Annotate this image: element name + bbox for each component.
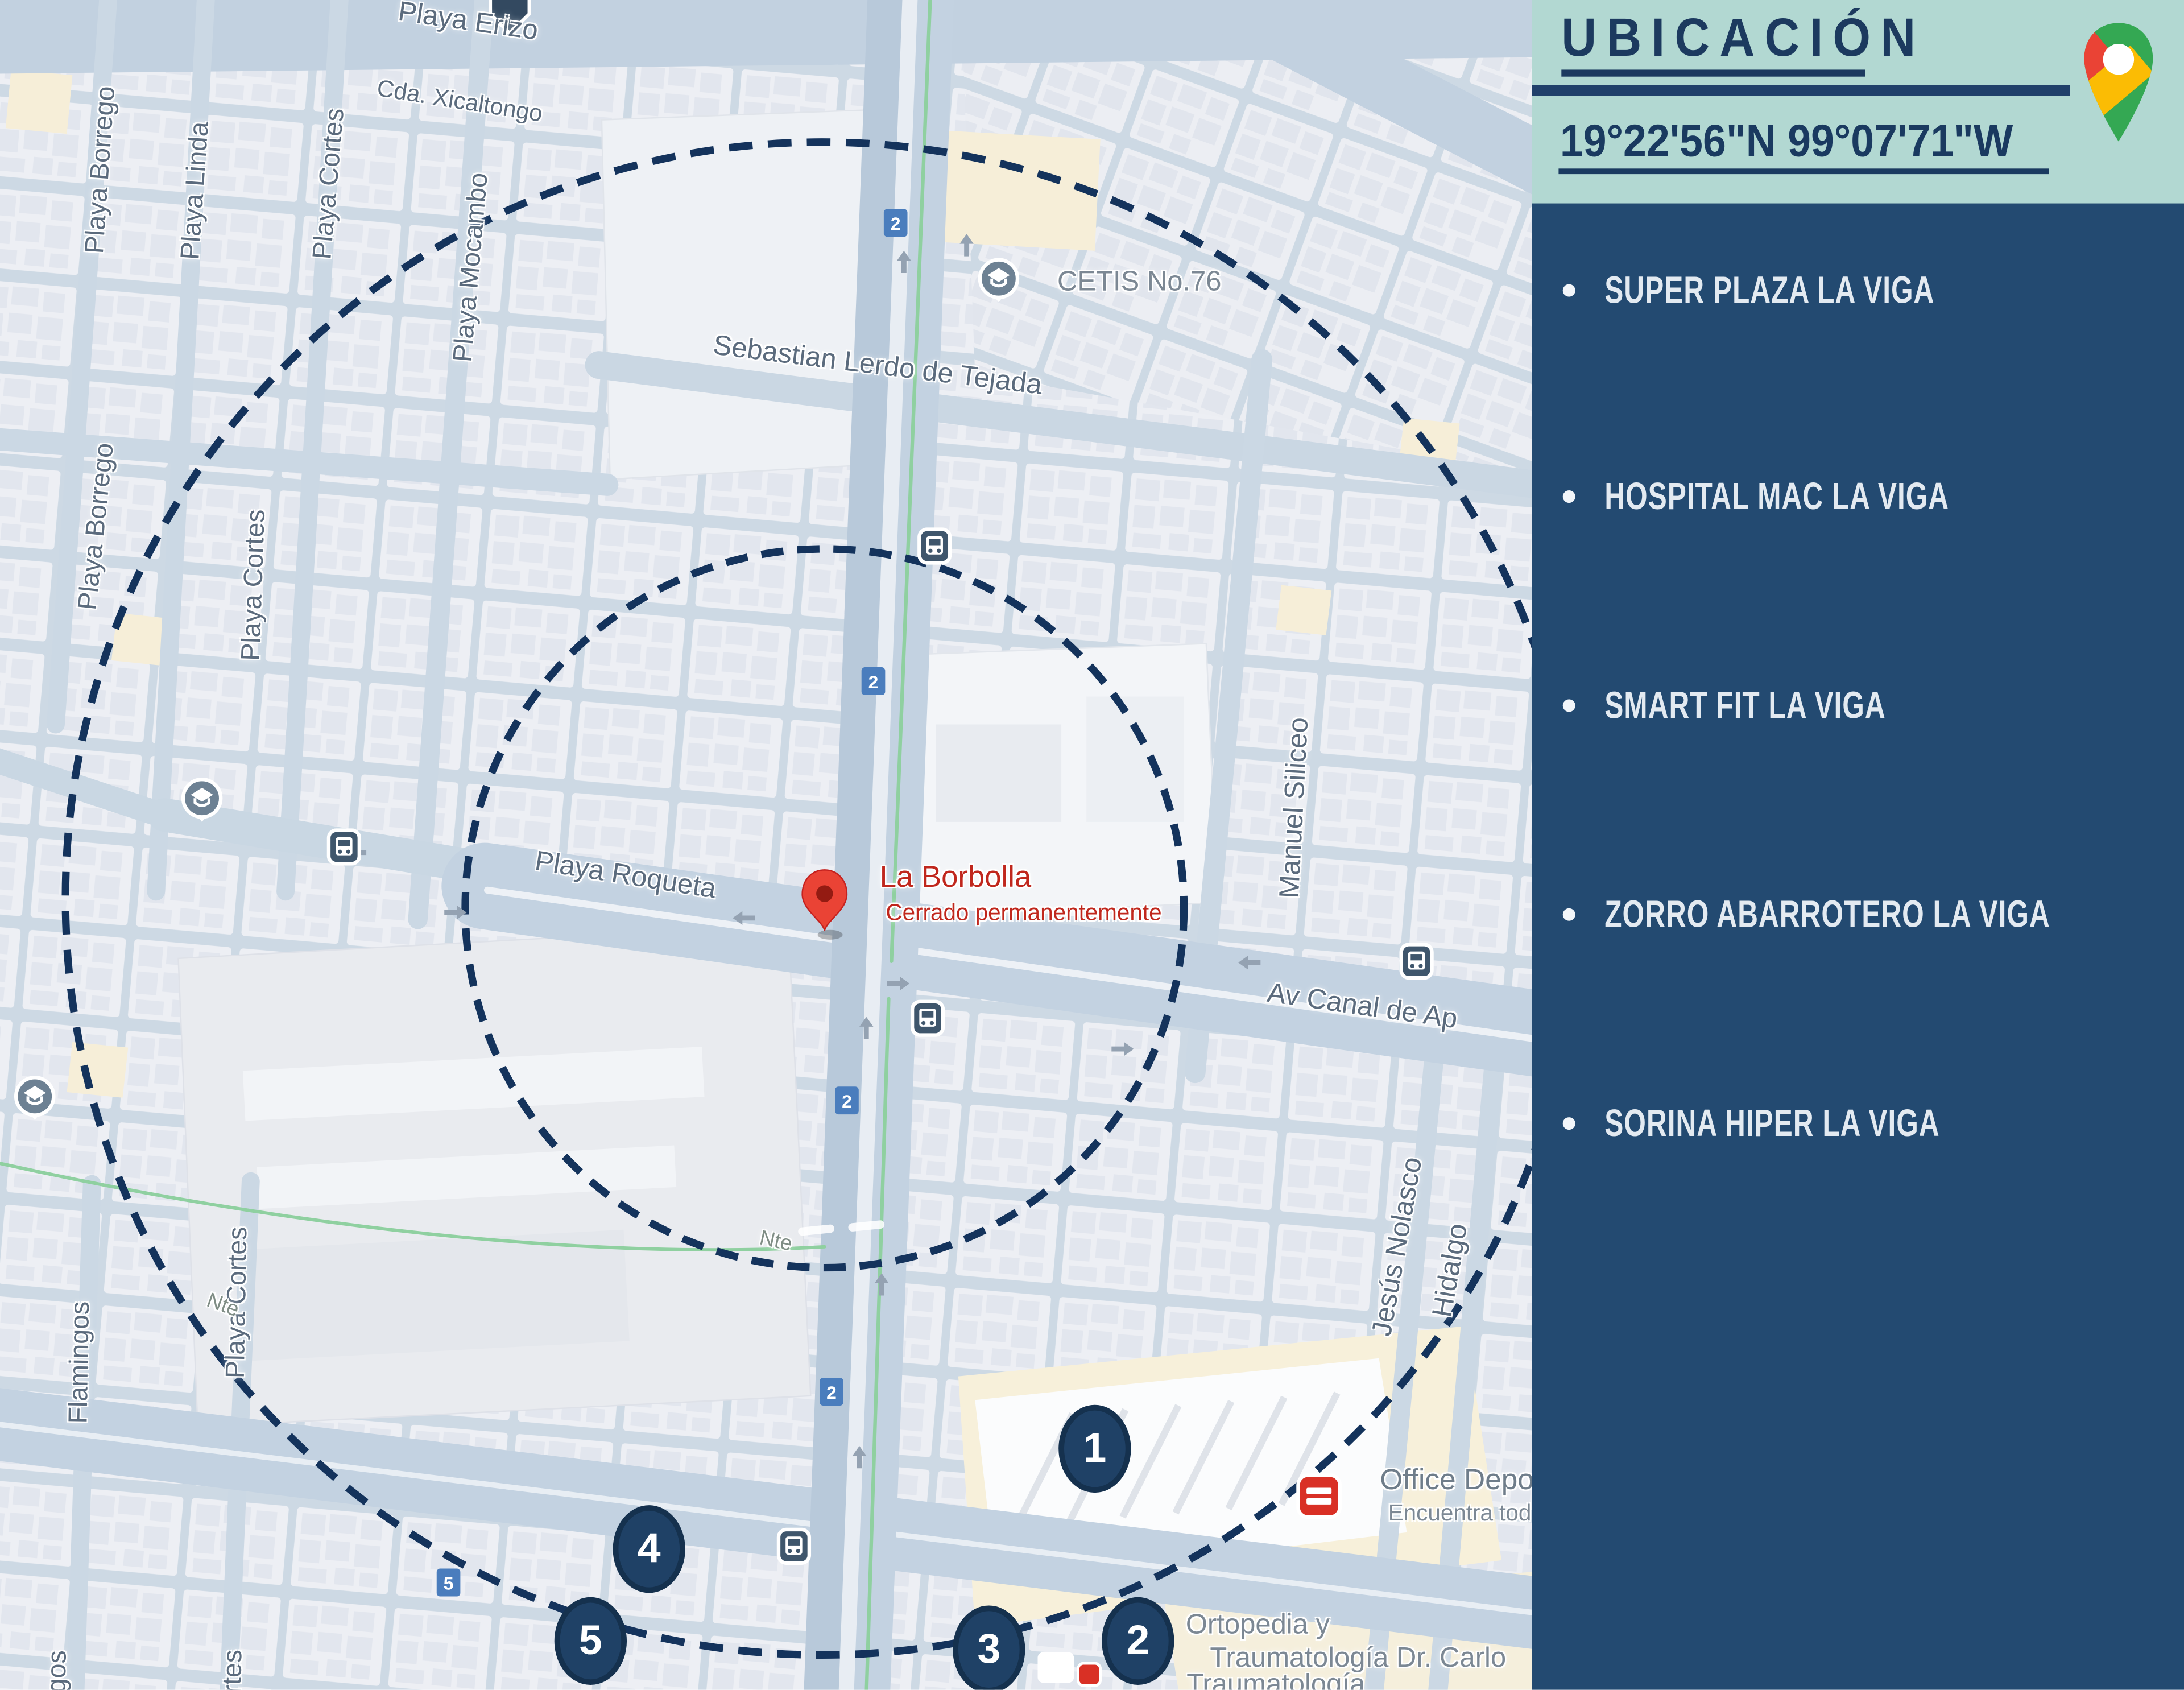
radius-marker-1[interactable]: 1: [1058, 1405, 1131, 1493]
route-shield-2: 2: [884, 209, 908, 237]
metro-station-icon[interactable]: [1401, 944, 1432, 978]
pin-name-label: La Borbolla: [880, 860, 1031, 895]
stage: Playa Erizo Cda. Xicaltongo Playa Borreg…: [0, 0, 2184, 1690]
poi-label-ortopedia-3: Traumatología: [1186, 1670, 1365, 1690]
marker-number: 2: [1126, 1617, 1149, 1664]
sidebar-item-label: ZORRO ABARROTERO LA VIGA: [1604, 892, 2050, 937]
poi-label-cetis: CETIS No.76: [1057, 267, 1222, 299]
radius-marker-3[interactable]: 3: [953, 1605, 1025, 1689]
street-label: Flamingos: [64, 1301, 97, 1424]
coordinates-text: 19°22'56"N 99°07'71"W: [1560, 117, 2013, 168]
bullet-icon: [1563, 284, 1575, 297]
marker-number: 3: [977, 1626, 1000, 1673]
sidebar-item: SUPER PLAZA LA VIGA: [1563, 269, 2028, 312]
red-poi-icon[interactable]: [1078, 1663, 1101, 1685]
poi-label-office-depot-sub: Encuentra tod: [1388, 1501, 1532, 1528]
marker-number: 4: [638, 1526, 661, 1573]
bullet-icon: [1563, 490, 1575, 503]
street-label: Playa Cortes: [237, 509, 273, 662]
street-label: gos: [43, 1650, 74, 1690]
sidebar-item-label: SUPER PLAZA LA VIGA: [1604, 268, 1934, 313]
sidebar-item: ZORRO ABARROTERO LA VIGA: [1563, 893, 2176, 936]
bus-station-icon[interactable]: [329, 830, 359, 864]
map-canvas[interactable]: Playa Erizo Cda. Xicaltongo Playa Borreg…: [0, 0, 1538, 1690]
sidebar-item-label: SMART FIT LA VIGA: [1604, 683, 1885, 729]
metro-station-icon[interactable]: [779, 1530, 809, 1563]
route-shield-2: 2: [862, 667, 886, 695]
route-shield-5: 5: [437, 1569, 461, 1597]
poi-box: [1037, 1652, 1074, 1683]
header-separator: [1532, 85, 2070, 95]
sidebar-title: UBICACIÓN: [1561, 9, 1925, 70]
bullet-icon: [1563, 1117, 1575, 1130]
poi-label-office-depot: Office Depo: [1380, 1464, 1534, 1498]
location-sidebar: UBICACIÓN 19°22'56"N 99°07'71"W: [1532, 0, 2184, 1690]
radius-marker-2[interactable]: 2: [1102, 1597, 1174, 1685]
metro-station-icon[interactable]: [912, 1002, 943, 1035]
title-underline: [1561, 69, 1865, 76]
sidebar-item-label: SORINA HIPER LA VIGA: [1604, 1101, 1939, 1146]
sidebar-item: HOSPITAL MAC LA VIGA: [1563, 475, 2046, 518]
poi-label-ortopedia-1: Ortopedia y: [1186, 1610, 1330, 1642]
route-shield-2: 2: [820, 1378, 843, 1406]
bullet-icon: [1563, 699, 1575, 712]
sidebar-item: SORINA HIPER LA VIGA: [1563, 1102, 2034, 1145]
slide: Playa Erizo Cda. Xicaltongo Playa Borreg…: [0, 0, 2184, 1690]
bus-station-icon[interactable]: [919, 530, 950, 563]
coordinates-underline: [1558, 168, 2049, 174]
route-shield-2: 2: [835, 1086, 859, 1114]
pin-status-label: Cerrado permanentemente: [886, 900, 1161, 927]
marker-number: 5: [579, 1617, 602, 1664]
radius-marker-4[interactable]: 4: [613, 1505, 685, 1593]
sidebar-header: UBICACIÓN 19°22'56"N 99°07'71"W: [1532, 0, 2184, 204]
sidebar-item: SMART FIT LA VIGA: [1563, 684, 1965, 727]
google-maps-logo-icon: [2078, 19, 2159, 152]
street-label: rtes: [218, 1650, 250, 1690]
office-depot-icon[interactable]: [1298, 1475, 1339, 1517]
bullet-icon: [1563, 908, 1575, 921]
marker-number: 1: [1083, 1425, 1106, 1472]
sidebar-item-label: HOSPITAL MAC LA VIGA: [1604, 474, 1949, 519]
radius-marker-5[interactable]: 5: [555, 1597, 627, 1685]
